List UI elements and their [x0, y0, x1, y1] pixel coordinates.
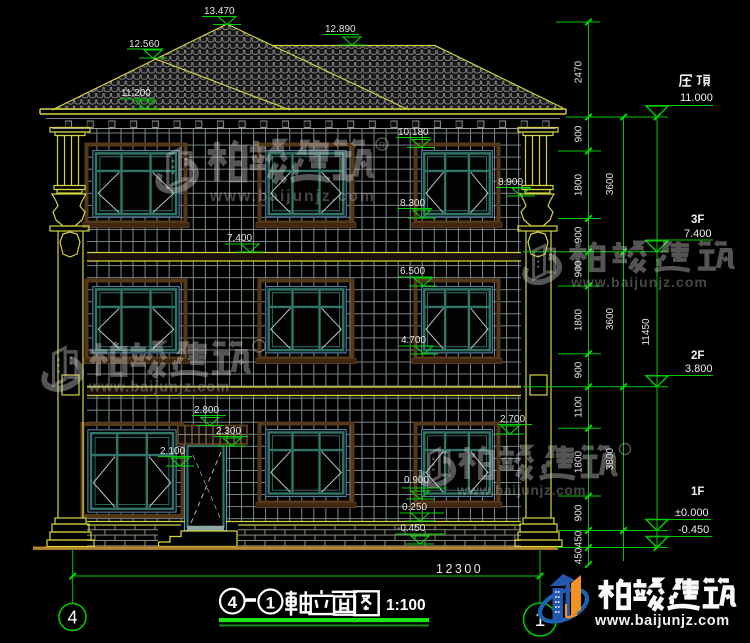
svg-text:3.800: 3.800	[685, 363, 713, 375]
svg-text:0.250: 0.250	[402, 502, 427, 513]
svg-text:2F: 2F	[691, 350, 704, 362]
svg-text:450: 450	[574, 530, 585, 547]
svg-text:900: 900	[574, 504, 585, 521]
svg-text:2.800: 2.800	[194, 405, 219, 416]
svg-text:2.100: 2.100	[160, 446, 185, 457]
svg-text:3600: 3600	[605, 172, 616, 195]
svg-text:7.400: 7.400	[684, 228, 712, 240]
svg-text:4: 4	[228, 593, 238, 612]
svg-text:4: 4	[67, 608, 77, 628]
svg-text:1800: 1800	[574, 450, 585, 473]
svg-text:-0.450: -0.450	[397, 523, 426, 534]
svg-text:±0.000: ±0.000	[675, 507, 709, 519]
svg-text:12.560: 12.560	[129, 39, 160, 50]
svg-text:4.700: 4.700	[401, 335, 426, 346]
svg-text:11.000: 11.000	[680, 92, 713, 104]
svg-text:8.900: 8.900	[498, 177, 523, 188]
svg-text:7.400: 7.400	[227, 233, 252, 244]
svg-text:2.300: 2.300	[216, 426, 241, 437]
svg-text:1: 1	[266, 593, 275, 612]
svg-text:3600: 3600	[605, 307, 616, 330]
svg-text:www.baijunjz.com: www.baijunjz.com	[570, 274, 708, 290]
svg-text:3F: 3F	[691, 214, 704, 226]
svg-text:www.baijunjz.com: www.baijunjz.com	[88, 380, 230, 396]
svg-text:900: 900	[574, 361, 585, 378]
svg-text:1:100: 1:100	[386, 597, 426, 614]
svg-text:2.700: 2.700	[500, 414, 525, 425]
svg-text:-0.450: -0.450	[678, 524, 709, 536]
svg-text:11.200: 11.200	[121, 88, 151, 99]
svg-text:1F: 1F	[691, 486, 704, 498]
svg-text:12.890: 12.890	[325, 24, 356, 35]
svg-text:www.baijunjz.com: www.baijunjz.com	[456, 483, 586, 498]
svg-text:13.470: 13.470	[204, 6, 235, 17]
svg-text:www.baijunjz.com: www.baijunjz.com	[209, 188, 376, 205]
svg-text:6.500: 6.500	[400, 266, 425, 277]
svg-text:450: 450	[574, 547, 585, 564]
svg-text:12300: 12300	[436, 562, 483, 576]
svg-text:900: 900	[574, 226, 585, 243]
svg-text:www.baijunjz.com: www.baijunjz.com	[594, 613, 730, 629]
svg-text:2470: 2470	[574, 60, 585, 83]
svg-text:1100: 1100	[574, 396, 585, 418]
svg-text:8.300: 8.300	[400, 198, 425, 209]
svg-text:R: R	[379, 140, 385, 150]
svg-text:10.180: 10.180	[398, 127, 429, 138]
svg-text:1800: 1800	[574, 173, 585, 196]
svg-text:11450: 11450	[641, 318, 652, 346]
svg-text:1800: 1800	[574, 308, 585, 331]
svg-text:900: 900	[574, 125, 585, 142]
